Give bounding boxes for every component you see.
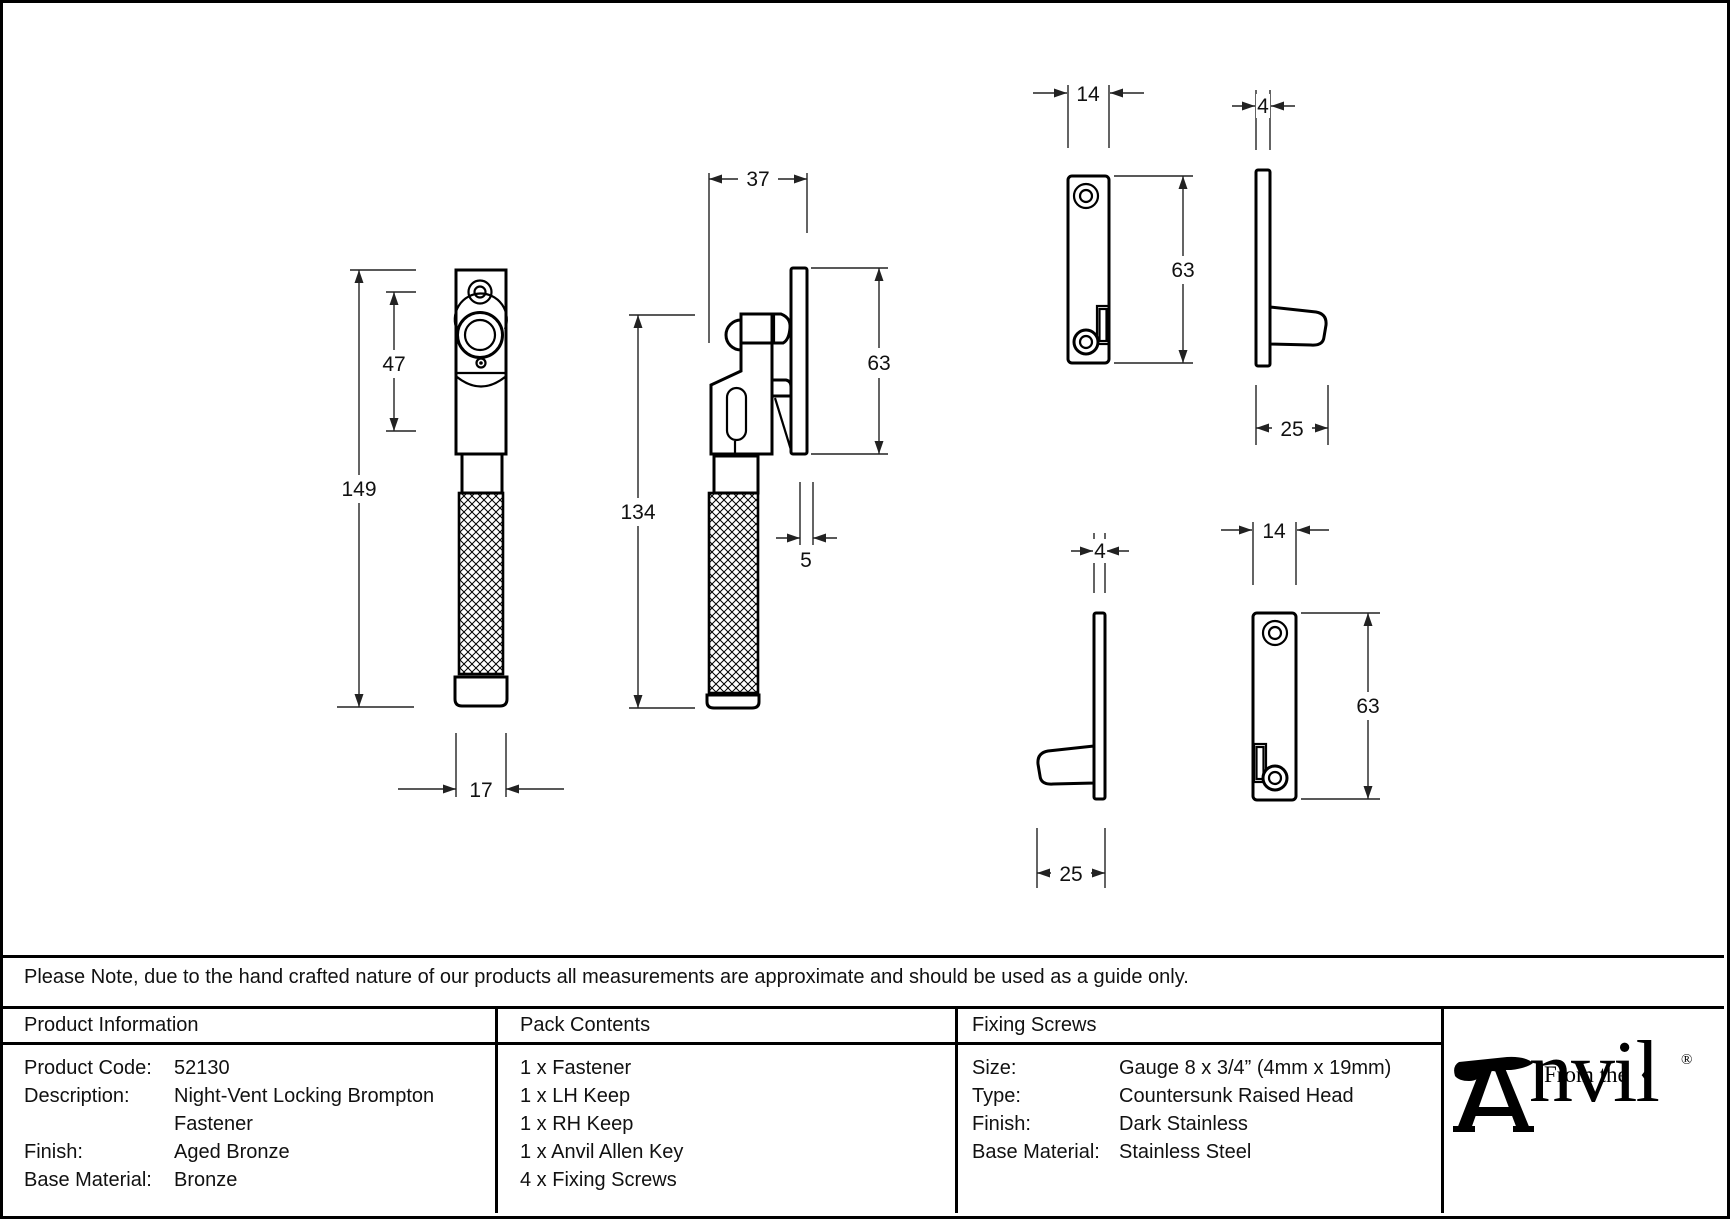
measurement-note: Please Note, due to the hand crafted nat… xyxy=(24,966,1674,989)
column-header-pack-contents: Pack Contents xyxy=(520,1014,650,1037)
field-value: Gauge 8 x 3/4” (4mm x 19mm) xyxy=(1119,1057,1391,1080)
registered-trademark: ® xyxy=(1681,1052,1692,1069)
field-label: Base Material: xyxy=(972,1141,1100,1164)
field-label: Description: xyxy=(24,1085,130,1108)
field-label: Product Code: xyxy=(24,1057,152,1080)
field-label: Finish: xyxy=(24,1141,83,1164)
anvil-logo: nvil From the ♦ ® xyxy=(1441,1006,1725,1213)
column-divider xyxy=(495,1006,498,1213)
column-header-fixing-screws: Fixing Screws xyxy=(972,1014,1096,1037)
field-value: Aged Bronze xyxy=(174,1141,290,1164)
product-spec-sheet: 149 47 17 xyxy=(0,0,1730,1226)
field-value: Stainless Steel xyxy=(1119,1141,1251,1164)
field-label: Finish: xyxy=(972,1113,1031,1136)
note-row-top-rule xyxy=(0,955,1724,958)
pack-item: 1 x Fastener xyxy=(520,1057,631,1080)
field-value: Bronze xyxy=(174,1169,237,1192)
field-value: Fastener xyxy=(174,1113,253,1136)
anvil-icon xyxy=(1451,1054,1535,1132)
field-value: Dark Stainless xyxy=(1119,1113,1248,1136)
diamond-icon: ♦ xyxy=(1641,1064,1651,1087)
table-header-rule xyxy=(0,1042,1441,1045)
pack-item: 1 x LH Keep xyxy=(520,1085,630,1108)
column-header-product-information: Product Information xyxy=(24,1014,199,1037)
field-value: Night-Vent Locking Brompton xyxy=(174,1085,434,1108)
pack-item: 4 x Fixing Screws xyxy=(520,1169,677,1192)
logo-tagline: From the xyxy=(1544,1062,1628,1088)
field-label: Base Material: xyxy=(24,1169,152,1192)
pack-item: 1 x Anvil Allen Key xyxy=(520,1141,683,1164)
field-label: Type: xyxy=(972,1085,1021,1108)
field-value: Countersunk Raised Head xyxy=(1119,1085,1354,1108)
pack-item: 1 x RH Keep xyxy=(520,1113,633,1136)
column-divider xyxy=(955,1006,958,1213)
field-label: Size: xyxy=(972,1057,1016,1080)
field-value: 52130 xyxy=(174,1057,230,1080)
